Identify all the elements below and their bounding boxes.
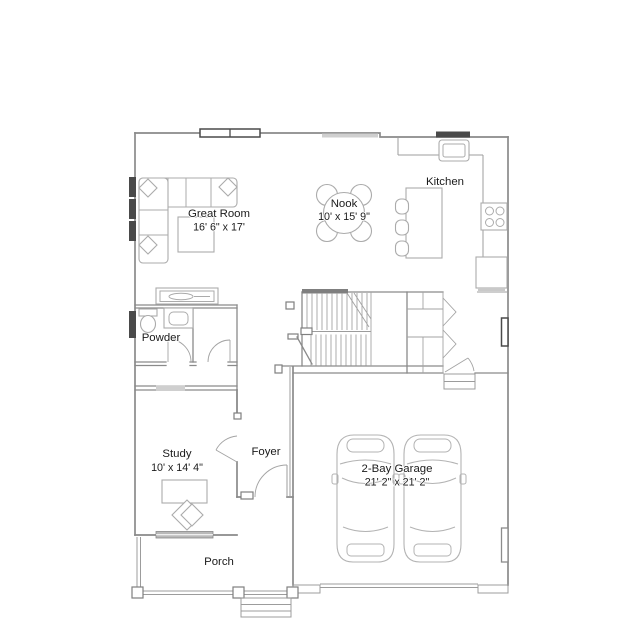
hall-closet-door bbox=[208, 340, 230, 362]
bar-stools bbox=[396, 199, 409, 256]
double-window bbox=[200, 129, 260, 137]
garage-cars bbox=[332, 435, 466, 562]
porch-column bbox=[132, 587, 143, 598]
garage-entry-door bbox=[445, 358, 474, 372]
window bbox=[129, 199, 136, 219]
door-jamb bbox=[234, 413, 241, 419]
door-jamb bbox=[288, 334, 298, 339]
wall-ledge-hatch bbox=[322, 134, 378, 138]
refrigerator bbox=[476, 257, 507, 288]
study-dimensions: 10' x 14' 4" bbox=[151, 462, 203, 474]
window bbox=[129, 311, 136, 338]
bifold-door bbox=[443, 298, 456, 326]
nook-dimensions: 10' x 15' 9" bbox=[318, 211, 370, 223]
porch-column bbox=[233, 587, 244, 598]
kitchen-area bbox=[396, 137, 509, 292]
powder-label: Powder bbox=[142, 332, 181, 344]
garage-door bbox=[320, 584, 478, 588]
pantry-closets bbox=[407, 292, 456, 373]
opening-jamb bbox=[286, 302, 294, 309]
nook-label: Nook bbox=[331, 198, 358, 210]
stair-newel bbox=[301, 328, 312, 335]
garage-entry-steps bbox=[444, 374, 475, 389]
foyer-label: Foyer bbox=[251, 446, 280, 458]
garage-dimensions: 21' 2" x 21' 2" bbox=[365, 477, 430, 489]
great-room-furniture bbox=[139, 178, 237, 304]
garage-label: 2-Bay Garage bbox=[362, 463, 433, 475]
garage-wall-return bbox=[478, 585, 508, 593]
great-room-dimensions: 16' 6" x 17' bbox=[193, 222, 245, 234]
stair-treads-lower bbox=[311, 335, 366, 366]
study-opening-hatch bbox=[156, 386, 185, 392]
study-desk bbox=[162, 480, 207, 503]
porch-label: Porch bbox=[204, 556, 234, 568]
floor-plan-canvas: Great Room 16' 6" x 17' Nook 10' x 15' 9… bbox=[0, 0, 639, 639]
floor-plan-drawing: Great Room 16' 6" x 17' Nook 10' x 15' 9… bbox=[0, 0, 639, 639]
foyer-front-door bbox=[241, 465, 287, 499]
kitchen-window bbox=[436, 132, 470, 138]
window bbox=[502, 318, 509, 346]
study-door bbox=[216, 436, 237, 462]
porch-column bbox=[287, 587, 298, 598]
door-sidelight bbox=[241, 492, 253, 499]
car-2 bbox=[399, 435, 466, 562]
understair-door bbox=[297, 337, 312, 364]
car-1 bbox=[332, 435, 399, 562]
garage-side-window bbox=[502, 528, 509, 562]
kitchen-sink bbox=[439, 140, 469, 161]
powder-vanity-sink bbox=[164, 308, 193, 328]
porch-structure bbox=[132, 537, 298, 617]
great-room-label: Great Room bbox=[188, 208, 250, 220]
kitchen-island bbox=[406, 188, 442, 258]
toilet bbox=[139, 309, 157, 333]
cooktop bbox=[481, 203, 507, 230]
opening-jamb bbox=[275, 365, 282, 373]
window bbox=[129, 221, 136, 241]
study-window bbox=[156, 532, 213, 539]
study-label: Study bbox=[162, 448, 191, 460]
window bbox=[129, 177, 136, 197]
front-steps bbox=[241, 598, 291, 617]
console-table bbox=[156, 288, 218, 304]
bifold-door bbox=[443, 330, 456, 358]
stair-railing bbox=[302, 289, 348, 294]
study-chair bbox=[172, 500, 203, 530]
front-door-swing bbox=[255, 465, 287, 497]
garage-structure bbox=[293, 358, 508, 593]
kitchen-label: Kitchen bbox=[426, 176, 464, 188]
staircase bbox=[288, 289, 443, 366]
